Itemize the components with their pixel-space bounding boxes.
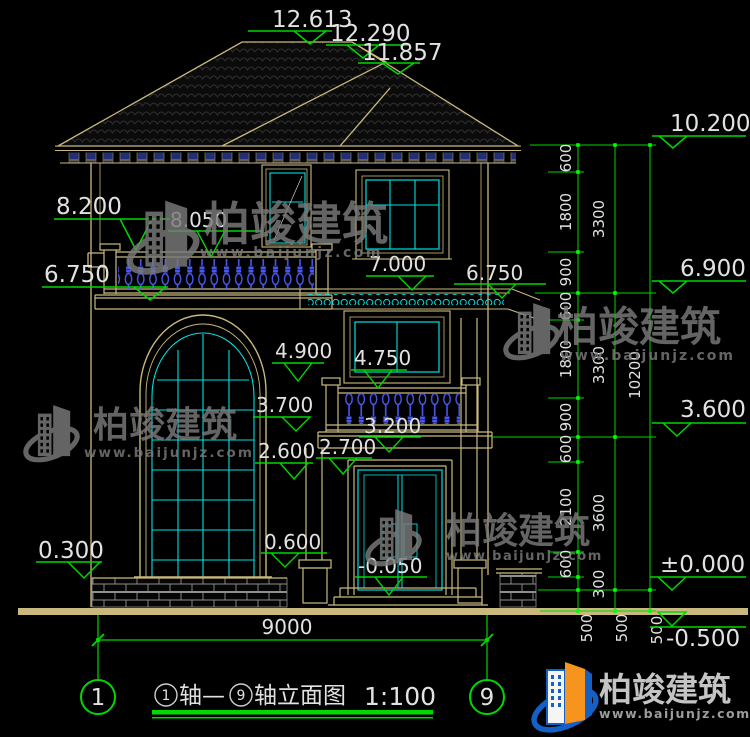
dim-label: 600 xyxy=(557,435,575,464)
elevation-label: 6.900 xyxy=(680,256,746,282)
watermark-brand: 柏竣建筑 xyxy=(446,511,590,552)
brand-url: www.baijunjz.com xyxy=(599,706,750,721)
elevation-label: 6.750 xyxy=(466,261,523,285)
dim-label: 500 xyxy=(578,614,596,643)
dim-label: 3600 xyxy=(590,494,608,532)
elevation-label: 8.200 xyxy=(56,194,122,220)
elevation-label: 2.600 xyxy=(258,439,315,463)
watermark-url: www.baijunjz.com xyxy=(560,348,735,364)
dim-label: 500 xyxy=(613,614,631,643)
watermark-url: www.baijunjz.com xyxy=(446,549,603,564)
dim-label: 900 xyxy=(557,403,575,432)
elevation-label: 4.900 xyxy=(275,339,332,363)
watermark-url: www.baijunjz.com xyxy=(84,445,254,461)
cornice-dot-row xyxy=(308,294,504,305)
watermark-url: www.baijunjz.com xyxy=(200,245,383,261)
elevation-drawing: 9000 600 1800 900 600 1800 900 600 2100 … xyxy=(0,0,750,737)
dentil-row xyxy=(68,153,516,163)
elevation-label: ±0.000 xyxy=(660,552,745,578)
dim-label: 1800 xyxy=(557,193,575,231)
elevation-label: 2.700 xyxy=(319,435,376,459)
title-underline-thin xyxy=(152,717,433,719)
elevation-label: 10.200 xyxy=(670,111,750,137)
circled-axis-label: 1 xyxy=(162,688,171,704)
elevation-drawing-canvas: 9000 600 1800 900 600 1800 900 600 2100 … xyxy=(0,0,750,737)
dim-label: 500 xyxy=(648,616,666,645)
dim-label-width: 9000 xyxy=(262,615,313,639)
elevation-label: 3.600 xyxy=(680,397,746,423)
circled-axis-label: 9 xyxy=(237,688,246,704)
drawing-scale: 1:100 xyxy=(364,682,436,711)
watermark-brand: 柏竣建筑 xyxy=(557,303,721,351)
elevation-label: 11.857 xyxy=(362,40,442,66)
dim-label: 600 xyxy=(557,144,575,173)
elevation-label: 4.750 xyxy=(354,346,411,370)
dim-label: 900 xyxy=(557,258,575,287)
elevation-label: 6.750 xyxy=(44,262,110,288)
brand-name: 柏竣建筑 xyxy=(599,670,731,709)
drawing-title-part: 轴立面图 xyxy=(254,683,346,709)
watermark-brand: 柏竣建筑 xyxy=(204,197,388,251)
axis-bubble-label: 1 xyxy=(91,685,106,711)
elevation-label: 0.300 xyxy=(38,538,104,564)
title-underline-thick xyxy=(152,710,433,715)
axis-bubble-label: 9 xyxy=(480,685,495,711)
elevation-label: -0.500 xyxy=(666,626,740,652)
elevation-label: 0.600 xyxy=(264,530,321,554)
dim-label: 300 xyxy=(590,570,608,599)
dim-label: 3300 xyxy=(590,200,608,238)
watermark-brand: 柏竣建筑 xyxy=(93,405,237,446)
elevation-label: 3.700 xyxy=(256,393,313,417)
drawing-title-part: 轴— xyxy=(179,683,225,709)
